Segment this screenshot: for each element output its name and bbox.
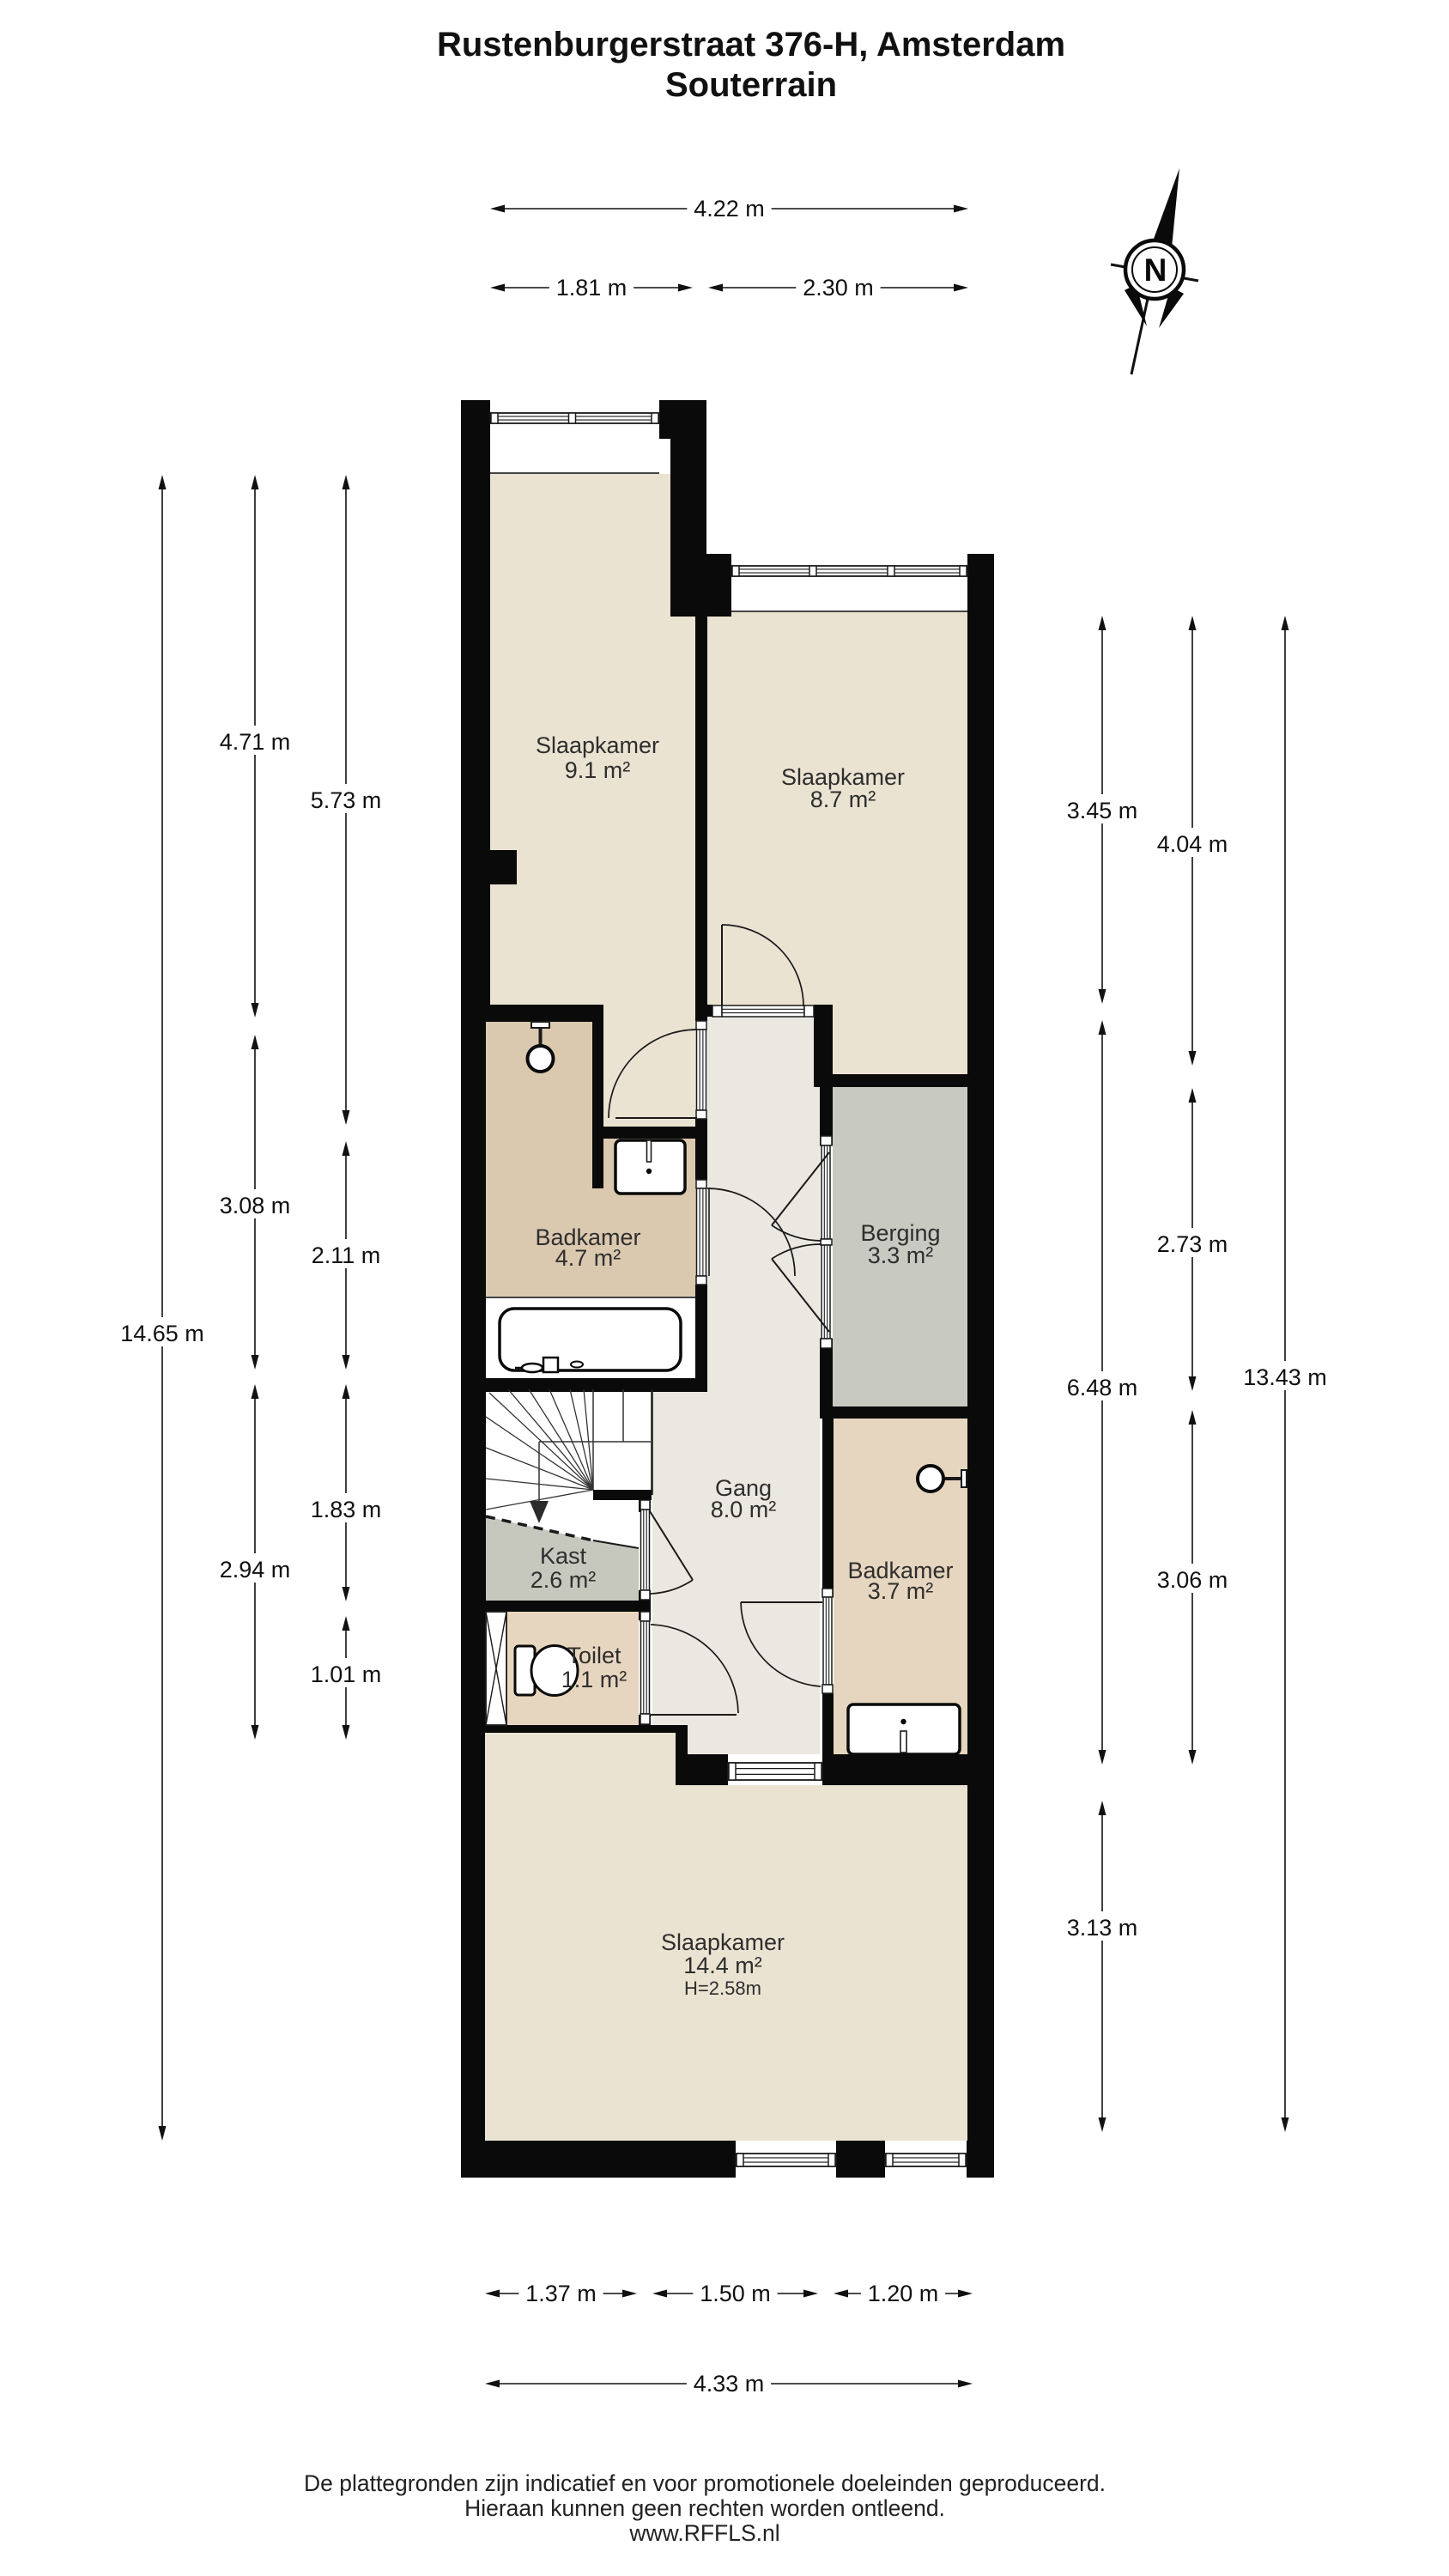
svg-text:8.0 m²: 8.0 m² bbox=[711, 1497, 777, 1522]
svg-text:N: N bbox=[1144, 252, 1167, 288]
svg-text:8.7 m²: 8.7 m² bbox=[810, 787, 876, 812]
svg-text:1.81 m: 1.81 m bbox=[556, 275, 627, 301]
svg-text:Toilet: Toilet bbox=[567, 1643, 621, 1668]
svg-text:1.01 m: 1.01 m bbox=[311, 1662, 382, 1687]
svg-text:1.37 m: 1.37 m bbox=[525, 2281, 597, 2306]
svg-text:4.04 m: 4.04 m bbox=[1157, 831, 1228, 857]
svg-text:2.11 m: 2.11 m bbox=[312, 1242, 381, 1268]
svg-text:4.71 m: 4.71 m bbox=[220, 729, 291, 755]
svg-text:3.7 m²: 3.7 m² bbox=[868, 1578, 934, 1604]
svg-text:Slaapkamer: Slaapkamer bbox=[536, 732, 659, 758]
svg-text:1.1 m²: 1.1 m² bbox=[561, 1667, 627, 1692]
svg-text:De plattegronden zijn indicati: De plattegronden zijn indicatief en voor… bbox=[304, 2470, 1106, 2496]
svg-text:Hieraan kunnen geen rechten wo: Hieraan kunnen geen rechten worden ontle… bbox=[464, 2495, 945, 2521]
svg-text:3.06 m: 3.06 m bbox=[1157, 1567, 1228, 1593]
svg-text:4.22 m: 4.22 m bbox=[694, 196, 765, 222]
svg-text:5.73 m: 5.73 m bbox=[311, 787, 382, 813]
svg-text:3.3 m²: 3.3 m² bbox=[868, 1242, 934, 1268]
svg-text:13.43 m: 13.43 m bbox=[1243, 1364, 1327, 1390]
svg-text:2.73 m: 2.73 m bbox=[1157, 1231, 1228, 1257]
svg-text:1.83 m: 1.83 m bbox=[311, 1497, 382, 1522]
svg-text:4.7 m²: 4.7 m² bbox=[555, 1245, 621, 1271]
svg-text:H=2.58m: H=2.58m bbox=[684, 1978, 761, 1999]
svg-text:2.30 m: 2.30 m bbox=[803, 275, 874, 301]
svg-text:1.20 m: 1.20 m bbox=[868, 2281, 939, 2306]
svg-text:1.50 m: 1.50 m bbox=[700, 2281, 771, 2306]
svg-text:Slaapkamer: Slaapkamer bbox=[661, 1929, 785, 1955]
svg-text:Souterrain: Souterrain bbox=[665, 66, 837, 104]
svg-text:14.65 m: 14.65 m bbox=[120, 1321, 204, 1346]
svg-text:6.48 m: 6.48 m bbox=[1067, 1375, 1138, 1400]
svg-text:14.4 m²: 14.4 m² bbox=[683, 1953, 762, 1978]
svg-text:2.6 m²: 2.6 m² bbox=[530, 1567, 597, 1593]
svg-text:Kast: Kast bbox=[540, 1543, 587, 1569]
svg-text:9.1 m²: 9.1 m² bbox=[565, 757, 631, 783]
svg-text:4.33 m: 4.33 m bbox=[694, 2371, 765, 2397]
svg-text:3.45 m: 3.45 m bbox=[1067, 798, 1138, 823]
svg-text:3.13 m: 3.13 m bbox=[1067, 1915, 1138, 1941]
svg-text:2.94 m: 2.94 m bbox=[220, 1557, 291, 1583]
svg-text:3.08 m: 3.08 m bbox=[220, 1193, 291, 1218]
svg-text:www.RFFLS.nl: www.RFFLS.nl bbox=[628, 2520, 779, 2546]
svg-text:Rustenburgerstraat 376-H, Amst: Rustenburgerstraat 376-H, Amsterdam bbox=[437, 26, 1065, 64]
